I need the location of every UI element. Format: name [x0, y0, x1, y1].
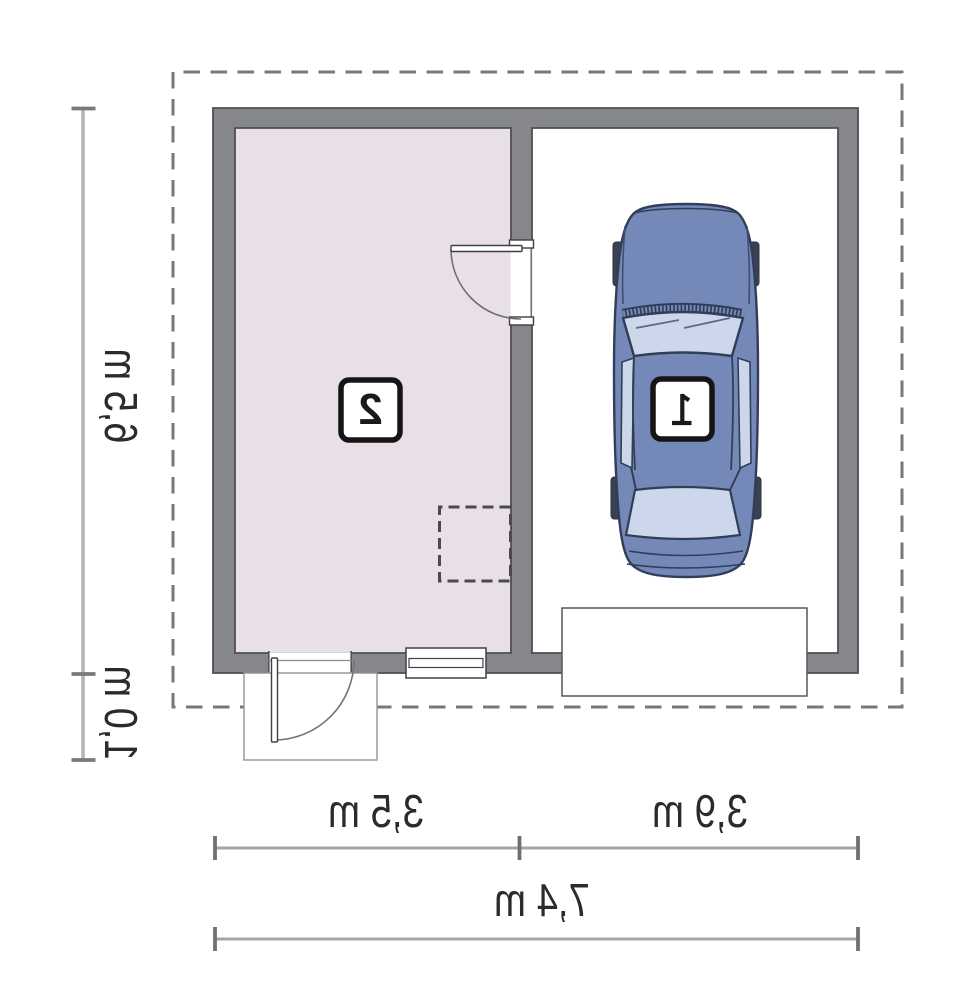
- svg-text:6,5 m: 6,5 m: [95, 349, 147, 444]
- svg-text:3,5 m: 3,5 m: [328, 785, 424, 837]
- svg-text:3,9 m: 3,9 m: [652, 785, 748, 837]
- svg-text:7,4 m: 7,4 m: [494, 874, 590, 926]
- svg-text:2: 2: [358, 386, 382, 434]
- svg-text:1,0 m: 1,0 m: [95, 666, 147, 761]
